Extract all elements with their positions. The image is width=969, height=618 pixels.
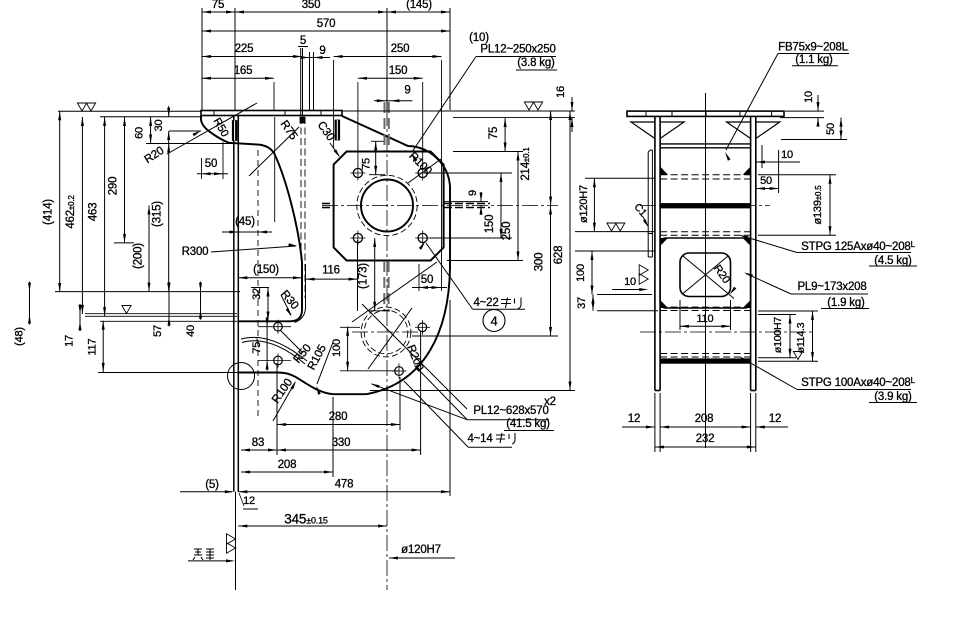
svg-text:9: 9 xyxy=(319,45,325,57)
svg-text:16: 16 xyxy=(555,86,567,98)
svg-text:(1.9 kg): (1.9 kg) xyxy=(827,297,865,309)
svg-text:ø100H7: ø100H7 xyxy=(772,317,784,354)
svg-text:225: 225 xyxy=(235,43,254,55)
svg-text:57: 57 xyxy=(152,325,164,337)
svg-text:(3.8 kg): (3.8 kg) xyxy=(517,57,555,69)
svg-text:17: 17 xyxy=(64,335,76,347)
svg-text:(48): (48) xyxy=(14,327,26,346)
svg-text:232: 232 xyxy=(696,433,715,445)
svg-text:(1.1 kg): (1.1 kg) xyxy=(795,54,833,66)
svg-text:116: 116 xyxy=(322,265,340,277)
svg-text:208: 208 xyxy=(695,413,714,425)
svg-text:100: 100 xyxy=(575,264,587,282)
svg-text:37: 37 xyxy=(576,297,588,309)
svg-text:(5): (5) xyxy=(205,479,219,491)
svg-text:75: 75 xyxy=(488,127,500,139)
svg-text:(4.5 kg): (4.5 kg) xyxy=(874,255,912,267)
svg-text:280: 280 xyxy=(329,411,348,423)
svg-text:40: 40 xyxy=(185,325,197,337)
svg-text:214±0.1: 214±0.1 xyxy=(520,147,532,181)
svg-text:32: 32 xyxy=(251,288,263,300)
svg-text:4: 4 xyxy=(490,314,497,329)
svg-text:ø139±0.5: ø139±0.5 xyxy=(812,185,824,225)
svg-text:R300: R300 xyxy=(182,246,209,258)
svg-text:83: 83 xyxy=(252,437,264,449)
svg-text:165: 165 xyxy=(234,65,253,77)
svg-text:10: 10 xyxy=(803,91,815,103)
svg-text:12: 12 xyxy=(628,413,640,425)
svg-text:290: 290 xyxy=(108,177,120,196)
svg-text:PL9~173x208: PL9~173x208 xyxy=(797,281,866,293)
svg-text:STPG 125Axø40~208L: STPG 125Axø40~208L xyxy=(801,240,915,253)
svg-text:(150): (150) xyxy=(253,264,279,276)
svg-text:FB75x9~208L: FB75x9~208L xyxy=(778,42,849,54)
svg-text:60: 60 xyxy=(134,127,146,139)
svg-text:300: 300 xyxy=(534,253,546,272)
svg-text:ø120H7: ø120H7 xyxy=(401,544,441,556)
svg-text:9: 9 xyxy=(467,190,479,196)
svg-text:50: 50 xyxy=(760,175,772,187)
svg-text:4~22: 4~22 xyxy=(473,297,498,309)
svg-text:250: 250 xyxy=(501,222,513,241)
svg-text:4~14: 4~14 xyxy=(467,433,493,445)
svg-text:(10): (10) xyxy=(469,32,489,44)
svg-text:(3.9 kg): (3.9 kg) xyxy=(874,391,912,403)
svg-text:350: 350 xyxy=(302,0,321,11)
svg-text:50: 50 xyxy=(205,158,217,170)
svg-text:50: 50 xyxy=(825,123,837,135)
svg-text:570: 570 xyxy=(317,18,336,30)
svg-text:75-: 75- xyxy=(251,338,263,354)
svg-text:330: 330 xyxy=(332,437,351,449)
svg-text:5: 5 xyxy=(300,35,306,47)
svg-text:12: 12 xyxy=(769,413,781,425)
svg-text:208: 208 xyxy=(278,459,297,471)
svg-text:ø120H7: ø120H7 xyxy=(578,185,590,223)
svg-text:9: 9 xyxy=(404,85,410,97)
svg-text:12: 12 xyxy=(243,495,255,507)
svg-text:478: 478 xyxy=(335,479,354,491)
svg-text:250: 250 xyxy=(391,43,410,55)
svg-text:(200): (200) xyxy=(133,243,145,269)
svg-text:75: 75 xyxy=(361,158,373,170)
svg-text:150: 150 xyxy=(389,65,408,77)
svg-text:10: 10 xyxy=(624,276,636,288)
svg-text:ø114.3: ø114.3 xyxy=(795,322,807,353)
svg-text:(41.5 kg): (41.5 kg) xyxy=(506,418,550,430)
svg-text:10: 10 xyxy=(781,149,793,161)
svg-text:117: 117 xyxy=(87,338,99,355)
svg-text:150: 150 xyxy=(484,215,496,234)
svg-text:463: 463 xyxy=(88,203,100,222)
svg-text:(414): (414) xyxy=(43,199,55,225)
svg-text:100: 100 xyxy=(331,339,343,357)
svg-text:STPG 100Axø40~208L: STPG 100Axø40~208L xyxy=(801,376,915,389)
svg-text:(315): (315) xyxy=(152,201,164,227)
svg-text:(145): (145) xyxy=(406,0,432,11)
svg-text:462±0.2: 462±0.2 xyxy=(65,195,77,229)
svg-text:PL12~250x250: PL12~250x250 xyxy=(480,44,555,56)
svg-text:110: 110 xyxy=(697,313,714,325)
svg-text:(173): (173) xyxy=(358,263,370,289)
svg-text:30: 30 xyxy=(153,120,165,132)
svg-text:50: 50 xyxy=(421,274,433,286)
svg-text:75: 75 xyxy=(212,0,224,11)
svg-text:PL12~628x570: PL12~628x570 xyxy=(473,405,548,417)
svg-text:628: 628 xyxy=(553,246,565,265)
svg-text:(45): (45) xyxy=(235,216,255,228)
